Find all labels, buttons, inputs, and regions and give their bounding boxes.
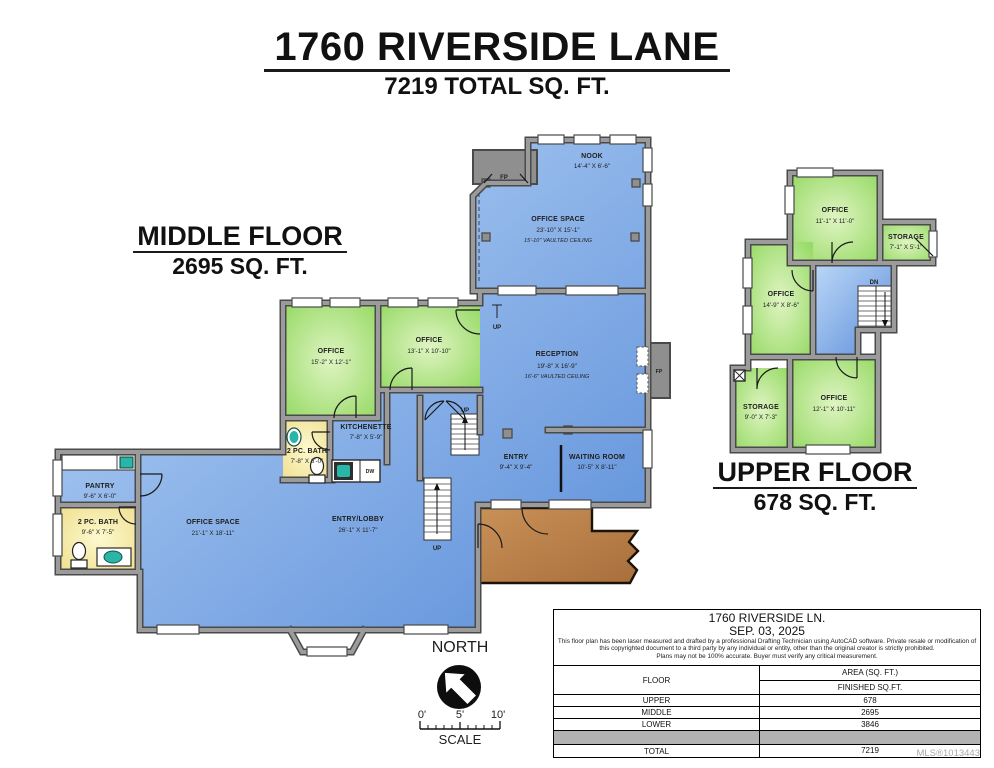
scale-tick-0: 0' xyxy=(418,709,426,721)
page-title-block: 1760 RIVERSIDE LANE 7219 TOTAL SQ. FT. xyxy=(0,26,994,100)
room-dims: 12'-1" X 10'-11" xyxy=(813,406,856,413)
row-floor: MIDDLE xyxy=(554,707,759,718)
down-label: DN xyxy=(870,280,879,286)
row-area: 678 xyxy=(759,695,980,706)
scale-tick-10: 10' xyxy=(491,709,505,721)
room-note: 15'-10" VAULTED CEILING xyxy=(524,238,593,244)
scale-label: SCALE xyxy=(439,732,482,747)
room-label: NOOK xyxy=(581,153,603,160)
scale-tick-5: 5' xyxy=(456,709,464,721)
room-office-left xyxy=(748,242,813,357)
room-label: OFFICE xyxy=(416,337,443,344)
room-dims: 9'-6" X 6'-0" xyxy=(84,493,117,500)
room-dims: 9'-4" X 9'-4" xyxy=(500,464,533,471)
stairs-upper xyxy=(858,286,894,330)
row-floor: LOWER xyxy=(554,719,759,730)
total-label: TOTAL xyxy=(554,745,759,757)
floor-plan-page: NOOK 14'-4" X 6'-6" OFFICE SPACE 23'-10"… xyxy=(0,0,994,768)
room-label: STORAGE xyxy=(743,404,779,411)
room-dims: 9'-0" X 7'-3" xyxy=(745,414,778,421)
room-label: PANTRY xyxy=(85,483,114,490)
table-header-row: FLOOR AREA (SQ. FT.) FINISHED SQ.FT. xyxy=(554,665,980,694)
page-title: 1760 RIVERSIDE LANE xyxy=(264,26,729,72)
room-dims: 19'-8" X 16'-9" xyxy=(537,363,577,370)
upper-floor-title: UPPER FLOOR xyxy=(713,458,916,489)
room-dims: 15'-2" X 12'-1" xyxy=(311,359,351,366)
north-label: NORTH xyxy=(432,639,489,656)
table-separator-row xyxy=(554,730,980,744)
info-table-date: SEP. 03, 2025 xyxy=(554,625,980,638)
room-label: 2 PC. BATH xyxy=(78,519,118,526)
room-dims: 14'-4" X 6'-6" xyxy=(574,163,610,170)
room-label: OFFICE SPACE xyxy=(531,216,585,223)
room-dims: 11'-1" X 11'-0" xyxy=(816,218,855,225)
col-area-header: AREA (SQ. FT.) xyxy=(760,666,980,681)
disclaimer-line-3: Plans may not be 100% accurate. Buyer mu… xyxy=(554,653,980,660)
info-table-header: 1760 RIVERSIDE LN. SEP. 03, 2025 This fl… xyxy=(554,610,980,665)
fireplace-label: FP xyxy=(656,369,663,375)
middle-floor-title: MIDDLE FLOOR xyxy=(133,222,346,253)
row-area: 3846 xyxy=(759,719,980,730)
room-label: ENTRY/LOBBY xyxy=(332,516,384,523)
disclaimer-line-1: This floor plan has been laser measured … xyxy=(554,638,980,645)
room-office-bottom xyxy=(790,357,878,450)
col-floor-header: FLOOR xyxy=(554,666,759,694)
room-label: OFFICE xyxy=(821,395,848,402)
page-subtitle: 7219 TOTAL SQ. FT. xyxy=(0,74,994,100)
room-dims: 7'-8" X 5'-9" xyxy=(350,434,383,441)
room-dims: 10'-5" X 8'-11" xyxy=(577,464,616,471)
sink-icon xyxy=(290,431,299,443)
room-dims: 26'-1" X 11'-7" xyxy=(338,527,377,534)
middle-floor-plan: NOOK 14'-4" X 6'-6" OFFICE SPACE 23'-10"… xyxy=(53,135,670,656)
room-label: STORAGE xyxy=(888,234,924,241)
compass: NORTH xyxy=(432,639,489,709)
mls-watermark: MLS®1013443 xyxy=(916,748,980,759)
kitchen-sink-icon xyxy=(337,465,350,477)
room-label: OFFICE SPACE xyxy=(186,519,240,526)
dishwasher-label: DW xyxy=(366,469,375,475)
room-label: ENTRY xyxy=(504,454,529,461)
row-floor: UPPER xyxy=(554,695,759,706)
middle-floor-heading: MIDDLE FLOOR 2695 SQ. FT. xyxy=(126,222,354,279)
up-label: UP xyxy=(493,325,501,331)
room-label: KITCHENETTE xyxy=(340,424,391,431)
info-table: 1760 RIVERSIDE LN. SEP. 03, 2025 This fl… xyxy=(553,609,981,758)
upper-floor-area: 678 SQ. FT. xyxy=(698,489,932,515)
room-dims: 7'-8" X 6'-0" xyxy=(291,458,324,465)
toilet-icon xyxy=(73,543,86,560)
room-dims: 7'-1" X 5'-1" xyxy=(890,244,923,251)
room-label: OFFICE xyxy=(768,291,795,298)
room-office-2 xyxy=(378,303,480,390)
room-label: RECEPTION xyxy=(536,351,579,358)
room-storage-right xyxy=(880,222,933,263)
upper-floor-plan: OFFICE 11'-1" X 11'-0" STORAGE 7'-1" X 5… xyxy=(733,168,937,454)
table-row: LOWER 3846 xyxy=(554,718,980,730)
up-label: UP xyxy=(461,408,469,414)
disclaimer-line-2: this copyrighted document to a third par… xyxy=(554,645,980,652)
room-label: WAITING ROOM xyxy=(569,454,625,461)
room-dims: 13'-1" X 10'-10" xyxy=(407,348,450,355)
col-finished-header: FINISHED SQ.FT. xyxy=(760,681,980,695)
scale-bar: 0' 5' 10' SCALE xyxy=(418,709,505,747)
room-dims: 21'-1" X 18'-11" xyxy=(192,530,235,537)
room-dims: 23'-10" X 15'-1" xyxy=(536,227,579,234)
room-dims: 14'-9" X 8'-6" xyxy=(763,302,799,309)
chimney-box-icon xyxy=(734,370,745,381)
room-note: 16'-6" VAULTED CEILING xyxy=(525,374,590,380)
room-label: 2 PC. BATH xyxy=(287,448,327,455)
up-label: UP xyxy=(433,546,441,552)
middle-floor-area: 2695 SQ. FT. xyxy=(126,253,354,279)
closet-fixture-icon xyxy=(120,457,133,468)
table-row: MIDDLE 2695 xyxy=(554,706,980,718)
room-dims: 9'-6" X 7'-5" xyxy=(82,529,115,536)
room-label: OFFICE xyxy=(822,207,849,214)
room-label: OFFICE xyxy=(318,348,345,355)
fireplace-label: FP xyxy=(500,175,508,181)
row-area: 2695 xyxy=(759,707,980,718)
table-row: UPPER 678 xyxy=(554,694,980,706)
sink-icon xyxy=(104,551,122,563)
upper-floor-heading: UPPER FLOOR 678 SQ. FT. xyxy=(698,458,932,515)
